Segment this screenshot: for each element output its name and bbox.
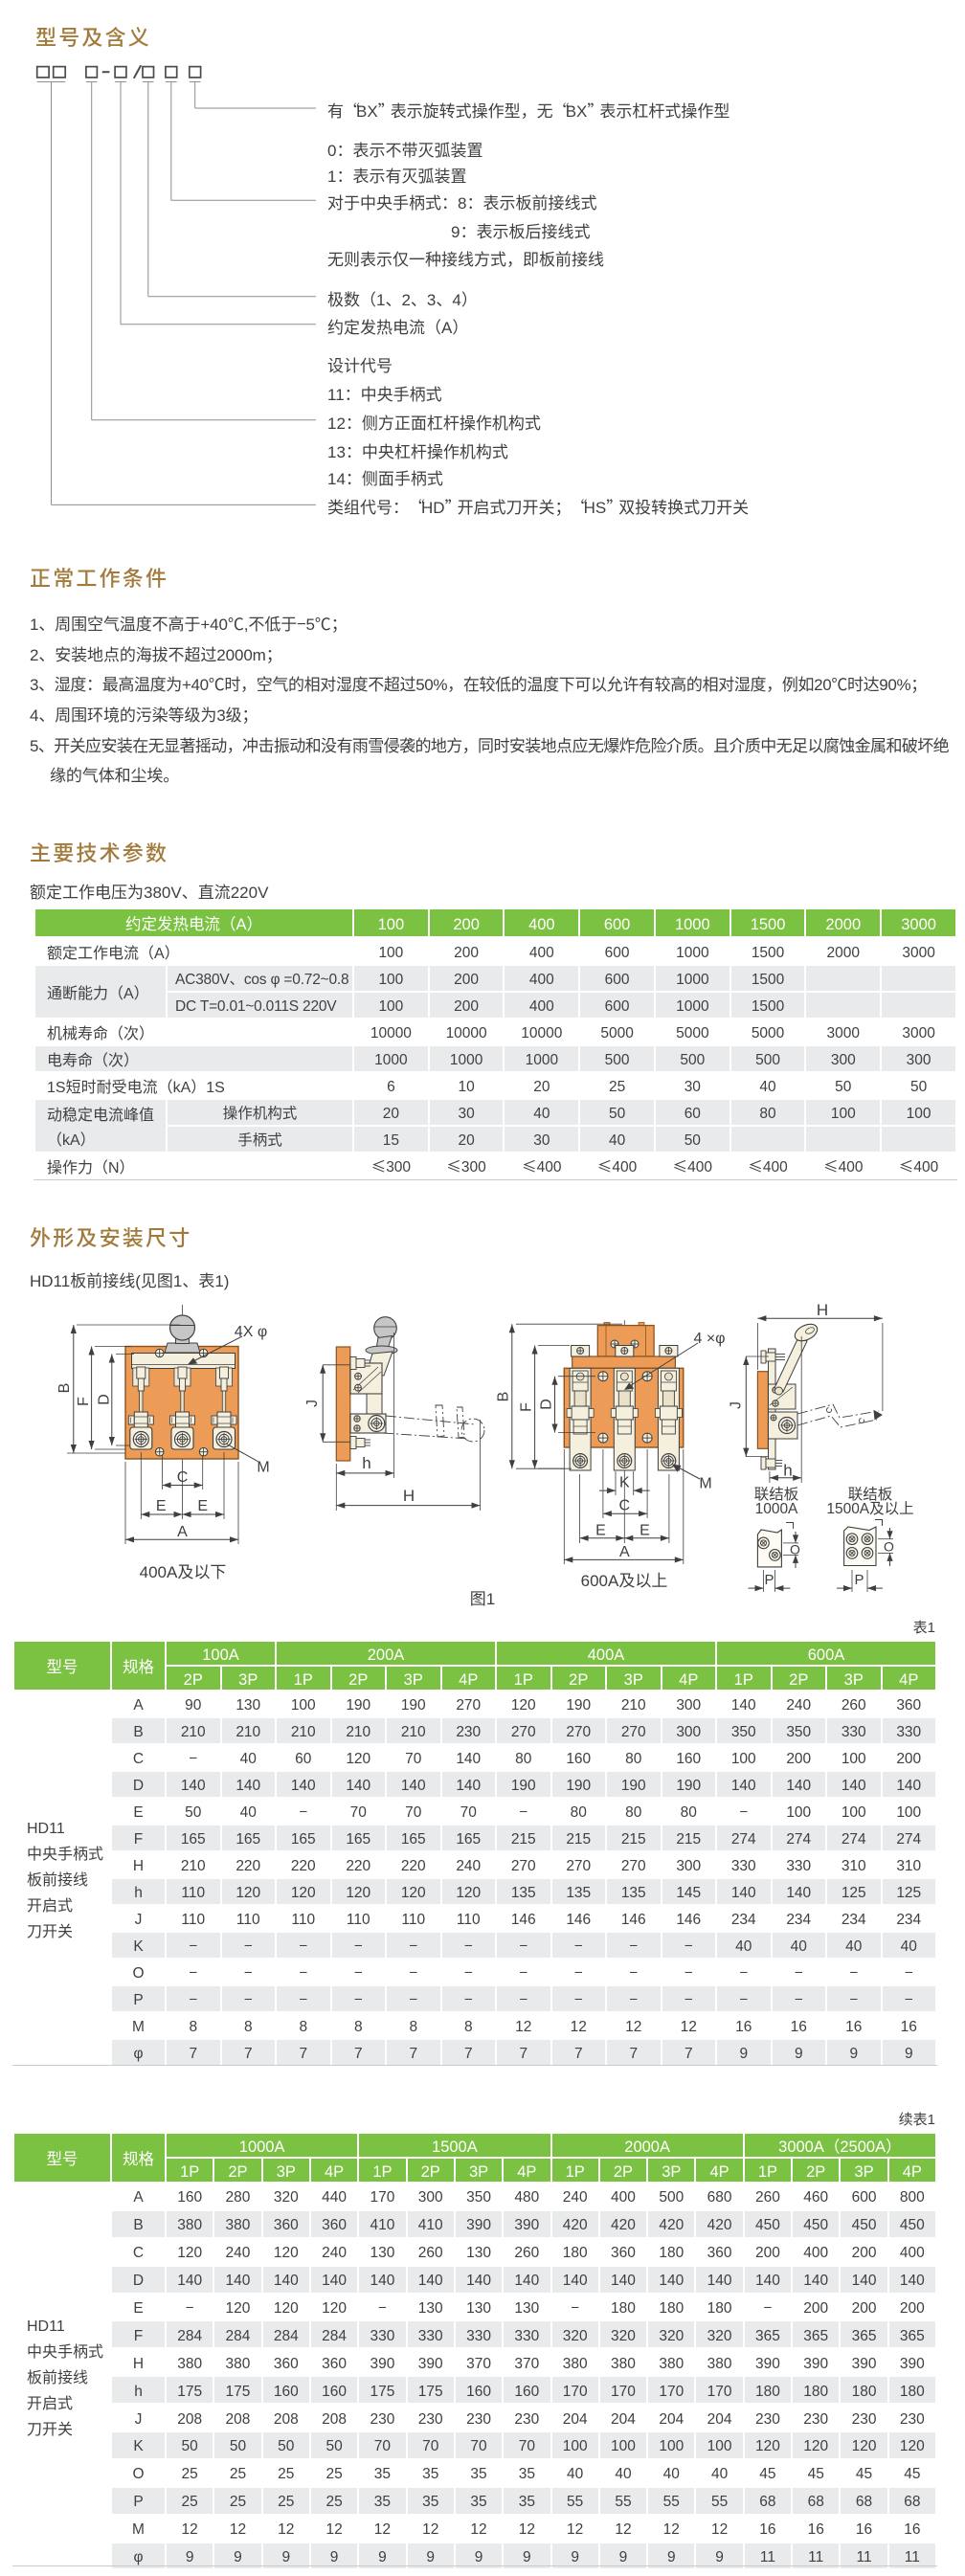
svg-text:B: B: [51, 1383, 74, 1394]
svg-text:C: C: [177, 1464, 189, 1487]
svg-text:J: J: [299, 1400, 322, 1407]
svg-text:J: J: [723, 1401, 746, 1409]
svg-text:M: M: [257, 1454, 269, 1477]
svg-text:P: P: [854, 1569, 864, 1589]
svg-text:B: B: [490, 1392, 513, 1402]
svg-text:H: H: [817, 1296, 828, 1320]
svg-text:h: h: [362, 1449, 370, 1473]
svg-text:E: E: [640, 1517, 650, 1540]
svg-text:E: E: [595, 1517, 606, 1540]
svg-text:D: D: [533, 1399, 556, 1410]
svg-text:O: O: [790, 1540, 800, 1559]
svg-text:4 ×φ: 4 ×φ: [693, 1325, 725, 1348]
svg-text:E: E: [197, 1492, 208, 1515]
svg-text:A: A: [177, 1518, 188, 1541]
svg-text:A: A: [619, 1538, 630, 1561]
svg-text:K: K: [619, 1469, 630, 1492]
svg-text:h: h: [783, 1457, 792, 1481]
svg-text:O: O: [884, 1537, 894, 1557]
svg-text:F: F: [70, 1397, 93, 1406]
svg-text:E: E: [156, 1492, 167, 1515]
svg-text:H: H: [403, 1482, 415, 1506]
svg-text:C: C: [619, 1492, 631, 1515]
svg-text:P: P: [764, 1569, 774, 1589]
svg-text:D: D: [91, 1394, 114, 1405]
svg-text:M: M: [699, 1470, 711, 1493]
